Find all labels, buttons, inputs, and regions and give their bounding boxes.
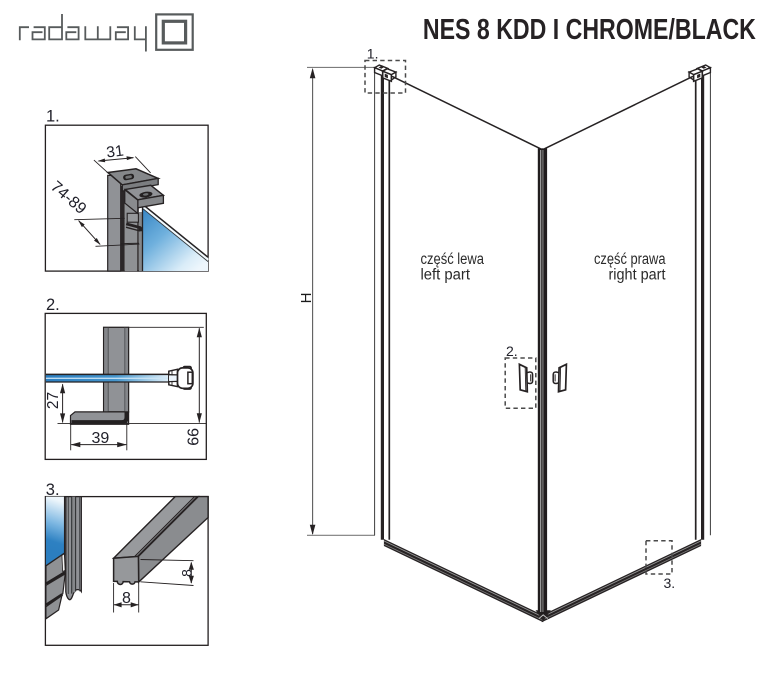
svg-text:1.: 1. <box>46 107 60 125</box>
svg-text:74-89: 74-89 <box>47 178 89 218</box>
svg-text:8: 8 <box>122 590 131 607</box>
svg-text:27: 27 <box>45 392 62 409</box>
svg-text:8: 8 <box>179 569 195 577</box>
svg-text:66: 66 <box>185 428 202 446</box>
svg-text:część lewa: część lewa <box>421 251 485 268</box>
svg-text:31: 31 <box>105 143 124 162</box>
svg-text:3.: 3. <box>664 575 676 591</box>
svg-text:NES 8 KDD I CHROME/BLACK: NES 8 KDD I CHROME/BLACK <box>423 14 756 46</box>
svg-text:2.: 2. <box>46 296 60 314</box>
svg-text:left part: left part <box>421 267 471 284</box>
svg-text:część prawa: część prawa <box>594 251 666 268</box>
svg-text:H: H <box>298 293 315 304</box>
svg-text:2.: 2. <box>506 343 518 359</box>
svg-text:right part: right part <box>609 267 667 284</box>
svg-text:1.: 1. <box>367 46 379 62</box>
svg-text:39: 39 <box>92 430 110 447</box>
